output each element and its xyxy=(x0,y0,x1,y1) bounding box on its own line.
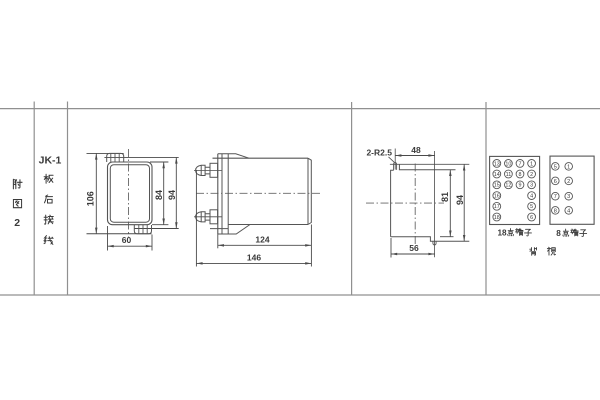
svg-text:15: 15 xyxy=(494,183,500,189)
svg-text:18: 18 xyxy=(494,215,500,221)
svg-text:10: 10 xyxy=(505,161,511,167)
svg-text:124: 124 xyxy=(255,234,269,244)
svg-text:16: 16 xyxy=(494,194,500,200)
svg-text:8: 8 xyxy=(556,229,561,238)
svg-text:11: 11 xyxy=(506,172,512,178)
svg-text:JK-1: JK-1 xyxy=(39,154,62,166)
svg-text:3: 3 xyxy=(530,183,533,189)
svg-text:81: 81 xyxy=(440,192,450,202)
svg-text:17: 17 xyxy=(494,204,500,210)
svg-text:9: 9 xyxy=(519,183,522,189)
svg-text:3: 3 xyxy=(567,194,570,200)
svg-text:2: 2 xyxy=(567,179,570,185)
svg-text:4: 4 xyxy=(567,208,570,214)
svg-text:13: 13 xyxy=(494,161,500,167)
svg-text:2: 2 xyxy=(14,217,20,229)
svg-text:7: 7 xyxy=(519,161,522,167)
svg-text:94: 94 xyxy=(167,190,177,200)
svg-text:48: 48 xyxy=(411,145,421,155)
svg-text:1: 1 xyxy=(567,164,570,170)
svg-text:7: 7 xyxy=(554,194,557,200)
svg-text:18: 18 xyxy=(497,228,507,237)
svg-text:6: 6 xyxy=(554,179,557,185)
svg-text:60: 60 xyxy=(122,235,132,245)
svg-text:94: 94 xyxy=(455,195,465,205)
svg-text:8: 8 xyxy=(519,172,522,178)
svg-text:84: 84 xyxy=(154,190,164,200)
svg-text:4: 4 xyxy=(530,194,533,200)
svg-text:8: 8 xyxy=(554,208,557,214)
svg-text:2: 2 xyxy=(530,172,533,178)
svg-text:2-R2.5: 2-R2.5 xyxy=(366,148,392,158)
svg-text:12: 12 xyxy=(505,183,511,189)
svg-text:106: 106 xyxy=(86,191,96,206)
svg-text:1: 1 xyxy=(530,161,533,167)
svg-text:56: 56 xyxy=(409,243,419,253)
svg-text:5: 5 xyxy=(554,164,557,170)
svg-text:6: 6 xyxy=(530,215,533,221)
svg-text:14: 14 xyxy=(494,172,500,178)
svg-text:5: 5 xyxy=(530,204,533,210)
svg-text:146: 146 xyxy=(247,252,261,262)
